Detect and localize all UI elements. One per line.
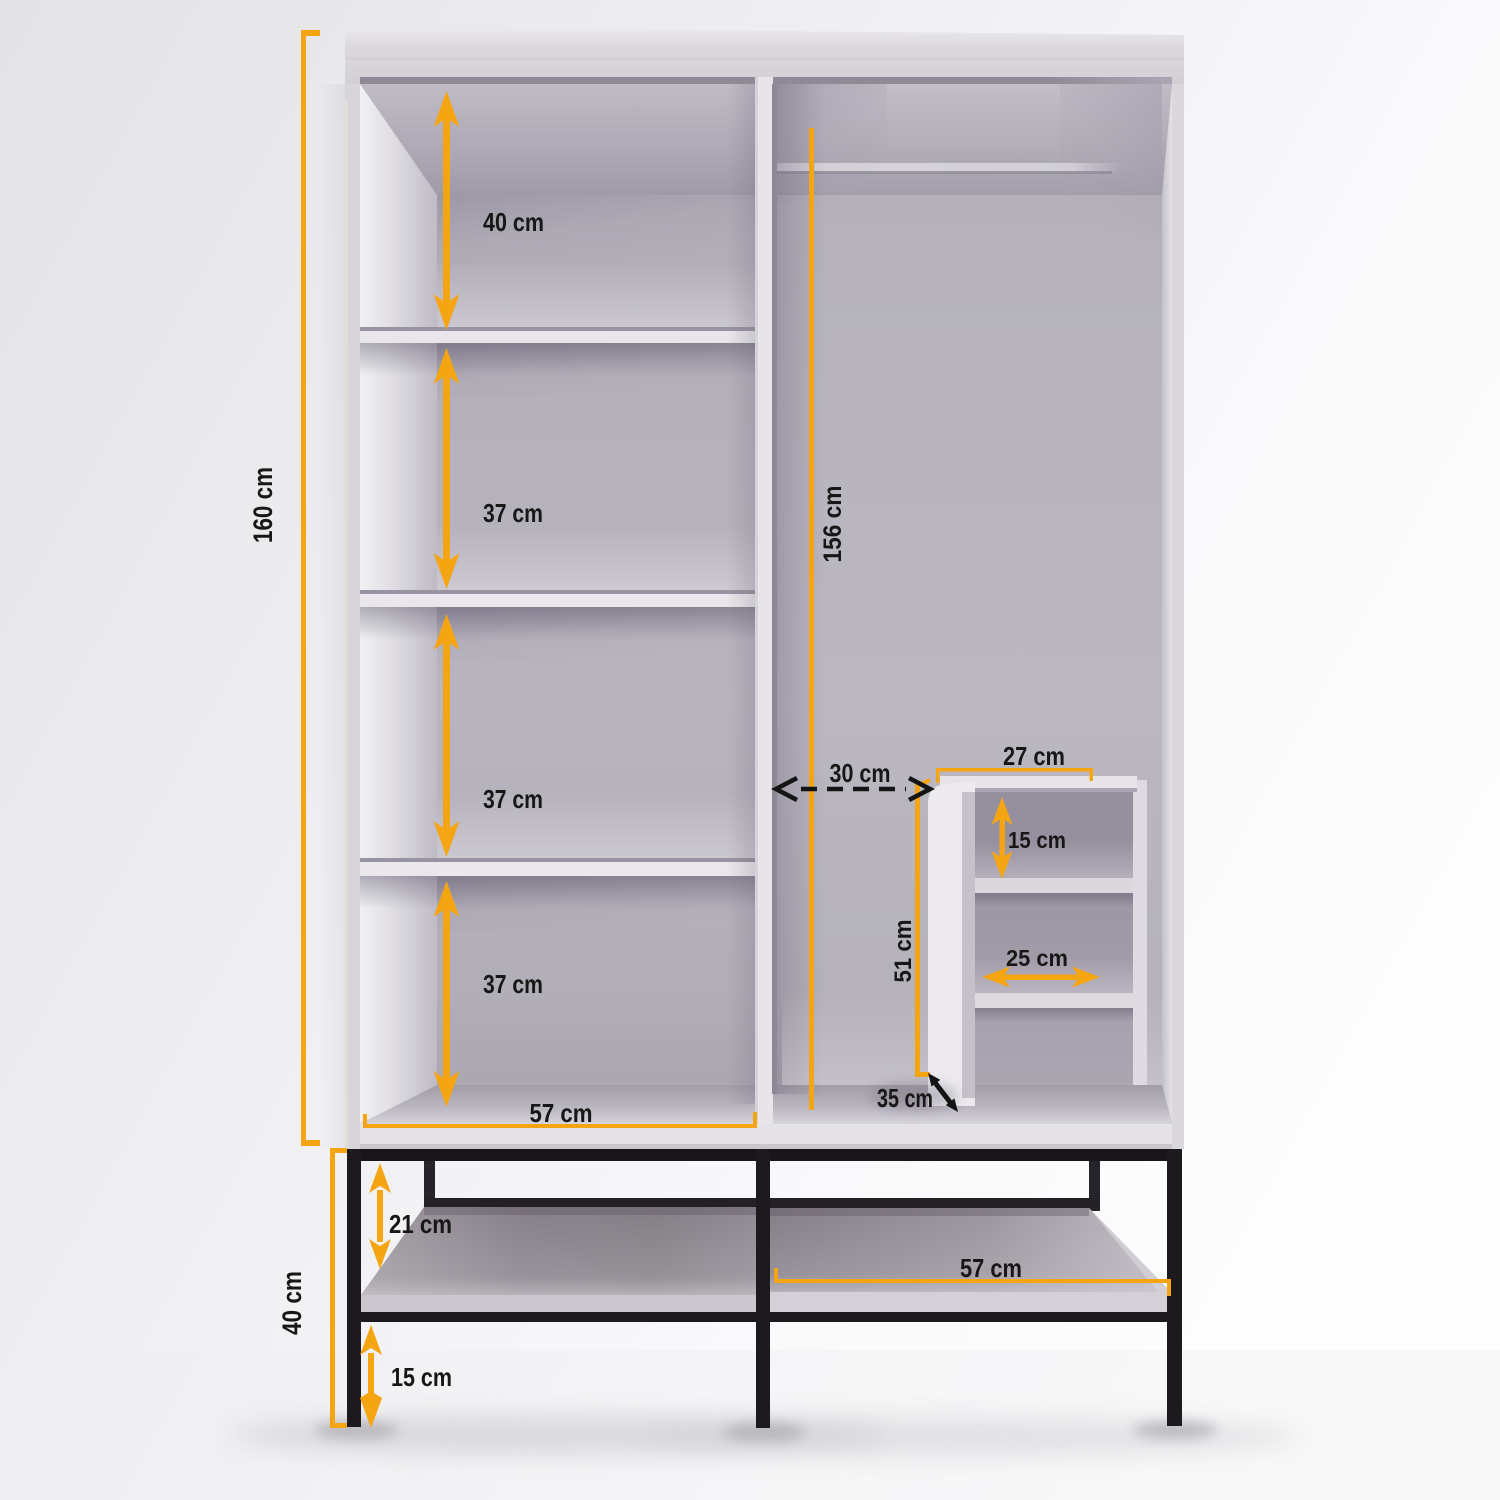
svg-text:21 cm: 21 cm	[389, 1209, 452, 1239]
svg-text:37 cm: 37 cm	[483, 498, 543, 528]
svg-text:57 cm: 57 cm	[960, 1253, 1022, 1283]
svg-text:37 cm: 37 cm	[483, 969, 543, 999]
svg-text:160 cm: 160 cm	[248, 467, 278, 543]
svg-text:15 cm: 15 cm	[1008, 827, 1066, 853]
svg-text:40 cm: 40 cm	[277, 1271, 307, 1335]
svg-text:15 cm: 15 cm	[391, 1362, 452, 1392]
svg-text:27 cm: 27 cm	[1003, 741, 1065, 771]
svg-text:35 cm: 35 cm	[877, 1083, 933, 1113]
svg-text:30 cm: 30 cm	[830, 758, 891, 788]
svg-text:156 cm: 156 cm	[819, 486, 847, 563]
svg-text:25 cm: 25 cm	[1006, 945, 1068, 971]
svg-text:40 cm: 40 cm	[483, 207, 544, 237]
svg-text:57 cm: 57 cm	[530, 1098, 593, 1128]
svg-text:37 cm: 37 cm	[483, 784, 543, 814]
svg-text:51 cm: 51 cm	[890, 920, 917, 983]
